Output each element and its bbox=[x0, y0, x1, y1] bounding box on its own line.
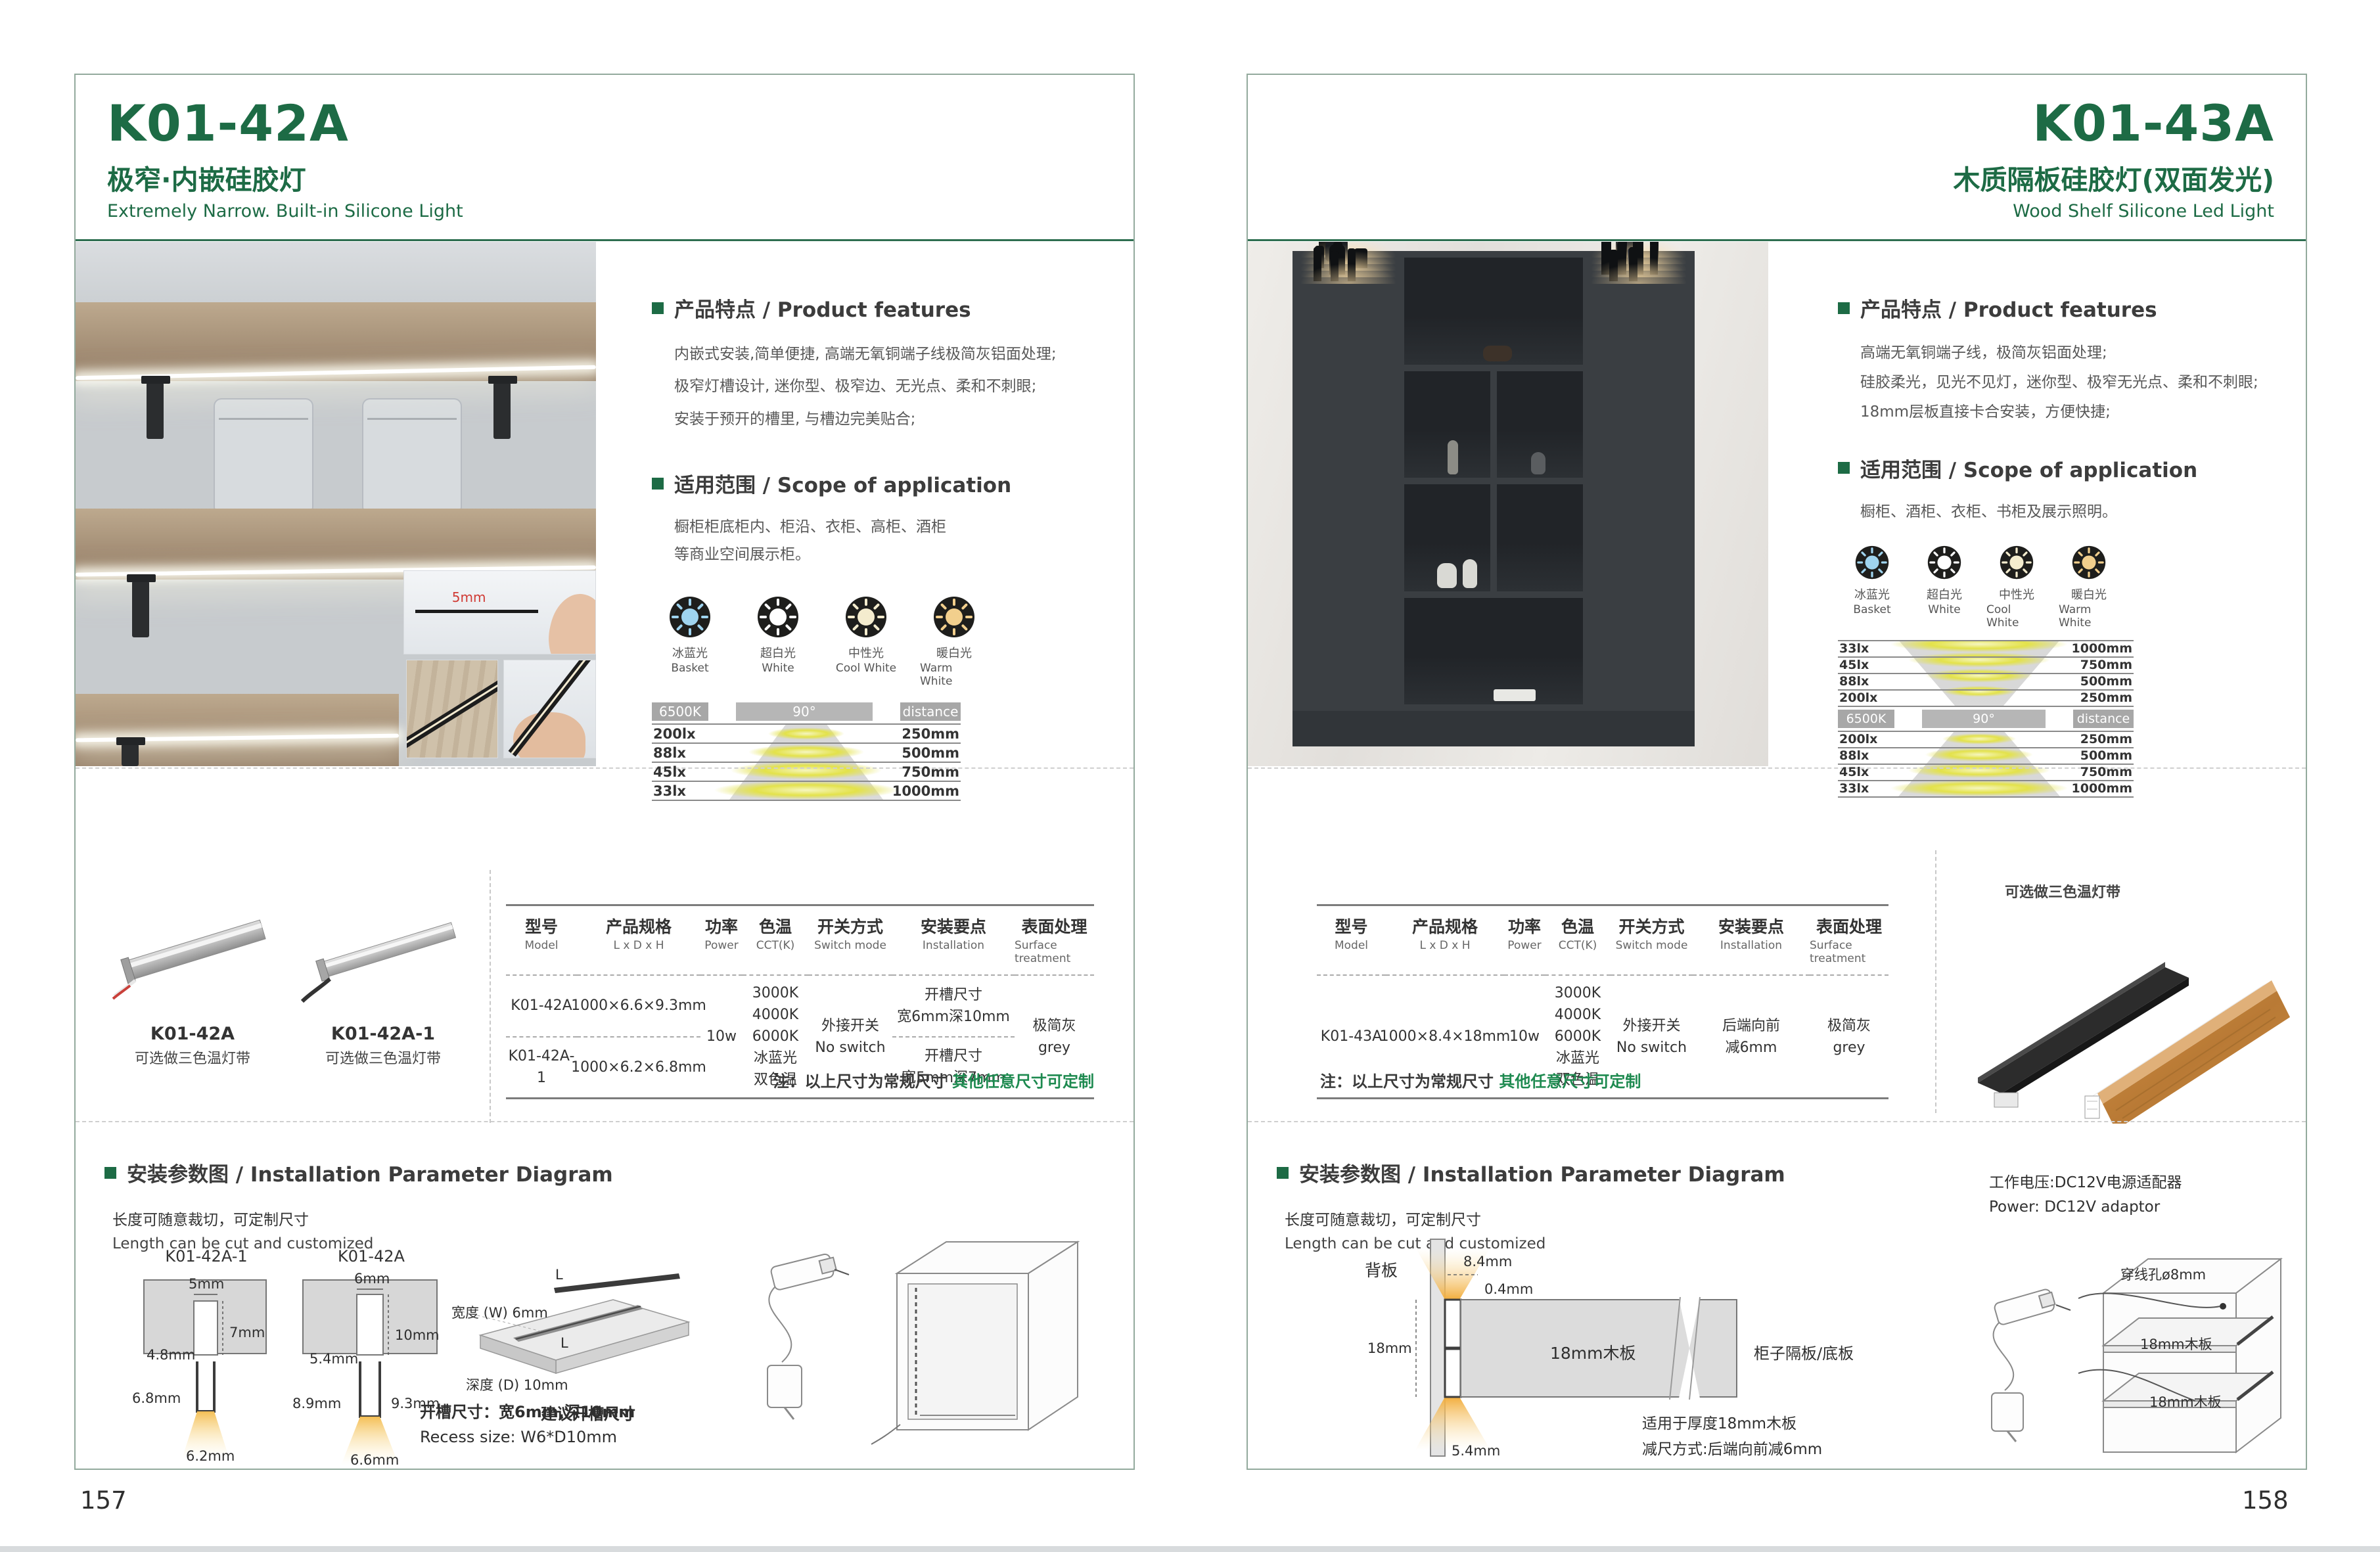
photo-ceiling bbox=[76, 242, 596, 302]
photometry-row: 200lx 250mm bbox=[652, 723, 961, 742]
right-product-figure: 可选做三色温灯带 bbox=[1968, 880, 2290, 1126]
install-heading-label: 安装参数图 / Installation Parameter Diagram bbox=[127, 1158, 613, 1187]
light-color-white: 超白光 White bbox=[744, 596, 812, 688]
section-divider bbox=[1248, 767, 2306, 769]
product-note: 可选做三色温灯带 bbox=[2005, 880, 2290, 902]
light-color-label-en: White bbox=[1928, 603, 1960, 616]
light-color-cool-white: 中性光 Cool White bbox=[1986, 545, 2047, 629]
photometry-rows-top: 33lx 1000mm 45lx 750mm 88lx 500mm 200lx … bbox=[1838, 640, 2134, 707]
cabinet-base bbox=[1293, 711, 1695, 746]
diagram-label: K01-42A-1 bbox=[131, 1247, 282, 1266]
scope-line: 橱柜柜底柜内、柜沿、衣柜、高柜、酒柜 bbox=[674, 514, 1120, 541]
back-panel-label: 背板 bbox=[1365, 1258, 1398, 1281]
shelf-board-label: 18mm木板 bbox=[2149, 1392, 2222, 1411]
cct-tag: 6500K bbox=[652, 702, 708, 721]
adapter-plug-illustration bbox=[1964, 1273, 2076, 1457]
shelf-cabinet-illustration: 穿线孔ø8mm 18mm木板 18mm木板 bbox=[2077, 1235, 2294, 1465]
board-length-label: L bbox=[555, 1267, 563, 1283]
dim-height-left: 8.9mm bbox=[292, 1396, 341, 1411]
cabinet-illustration bbox=[861, 1227, 1091, 1457]
light-color-label-en: White bbox=[762, 662, 794, 675]
scope-line: 等商业空间展示柜。 bbox=[674, 541, 1120, 568]
col-header-size: 产品规格L x D x H bbox=[1386, 906, 1504, 976]
product-note: 可选做三色温灯带 bbox=[103, 1047, 282, 1068]
features-heading: 产品特点 / Product features bbox=[1838, 293, 2298, 323]
photometry-row: 33lx 1000mm bbox=[1838, 640, 2134, 656]
cct-tag: 6500K bbox=[1838, 710, 1894, 728]
left-product-figures: K01-42A 可选做三色温灯带 K01-42A-1 可选做三色温灯带 bbox=[103, 880, 472, 1068]
light-color-label-cn: 超白光 bbox=[1927, 585, 1962, 603]
power-spec-cn: 工作电压:DC12V电源适配器 bbox=[1989, 1171, 2182, 1195]
distance-tag: distance bbox=[900, 702, 961, 721]
dim-height: 6.8mm bbox=[132, 1390, 181, 1406]
wire-hole-label: 穿线孔ø8mm bbox=[2120, 1264, 2206, 1284]
feature-line: 安装于预开的槽里, 与槽边完美贴合; bbox=[674, 403, 1120, 436]
feature-line: 18mm层板直接卡合安装，方便快捷; bbox=[1860, 398, 2298, 427]
photometry-row: 45lx 750mm bbox=[652, 762, 961, 781]
feature-line: 高端无氧铜端子线，极简灰铝面处理; bbox=[1860, 338, 2298, 368]
dim-bottom-width: 6.6mm bbox=[350, 1452, 399, 1468]
light-color-label-cn: 冰蓝光 bbox=[672, 644, 708, 661]
diagram-label: K01-42A bbox=[292, 1247, 450, 1266]
dim-8-4: 8.4mm bbox=[1463, 1254, 1512, 1269]
light-color-ice-blue: 冰蓝光 Basket bbox=[1842, 545, 1902, 629]
cut-note-cn: 长度可随意裁切，可定制尺寸 bbox=[1285, 1209, 1545, 1233]
recessed-strip bbox=[406, 672, 498, 752]
cell-install: 开槽尺寸宽6mm深10mm bbox=[892, 976, 1015, 1036]
distance-value: 750mm bbox=[2080, 765, 2132, 779]
vertical-divider bbox=[490, 870, 491, 1123]
light-color-label-en: Warm White bbox=[2059, 603, 2119, 629]
product-name: K01-42A bbox=[103, 1024, 282, 1044]
lux-value: 33lx bbox=[1839, 641, 1869, 656]
note-custom: 其他任意尺寸可定制 bbox=[952, 1072, 1094, 1091]
square-bullet-icon bbox=[652, 478, 664, 490]
cabinet-cell bbox=[1404, 371, 1490, 478]
shelf-profile-image bbox=[1968, 907, 2290, 1124]
left-model-title: K01-42A bbox=[107, 97, 1102, 150]
left-install-section: 安装参数图 / Installation Parameter Diagram 长… bbox=[76, 1149, 1133, 1467]
col-header-surface: 表面处理Surface treatment bbox=[1810, 906, 1888, 976]
light-color-label-cn: 暖白光 bbox=[2071, 585, 2107, 603]
lux-value: 200lx bbox=[1839, 732, 1877, 746]
sun-icon bbox=[669, 596, 711, 638]
shelf-bracket bbox=[493, 382, 511, 439]
photometry-row: 45lx 750mm bbox=[1838, 764, 2134, 780]
col-header-size: 产品规格L x D x H bbox=[577, 906, 700, 976]
feature-line: 极窄灯槽设计, 迷你型、极窄边、无光点、柔和不刺眼; bbox=[674, 371, 1120, 403]
photometry-row: 45lx 750mm bbox=[1838, 656, 2134, 673]
scope-heading-label: 适用范围 / Scope of application bbox=[674, 468, 1011, 498]
col-header-model: 型号Model bbox=[506, 906, 577, 976]
col-header-power: 功率Power bbox=[1504, 906, 1545, 976]
shelf-board-label: 18mm木板 bbox=[2140, 1334, 2212, 1354]
recess-diagram-graphic bbox=[131, 1271, 282, 1468]
col-header-surface: 表面处理Surface treatment bbox=[1015, 906, 1094, 976]
photometry-tags: 6500K 90° distance bbox=[1838, 710, 2134, 728]
cabinet-column bbox=[1590, 258, 1688, 704]
shelf-cross-section: 背板 8.4mm 0.4mm 18mm 18mm木板 柜子隔板/底板 5.4mm… bbox=[1287, 1234, 1944, 1464]
distance-value: 1000mm bbox=[892, 783, 959, 799]
distance-value: 750mm bbox=[902, 764, 959, 780]
cabinet-graphic bbox=[861, 1227, 1091, 1457]
photometry-diagram-double: 33lx 1000mm 45lx 750mm 88lx 500mm 200lx … bbox=[1838, 640, 2134, 798]
install-heading: 安装参数图 / Installation Parameter Diagram bbox=[1277, 1158, 1785, 1187]
aluminum-profile-image bbox=[110, 880, 275, 1018]
dim-bottom-width: 6.2mm bbox=[186, 1448, 235, 1464]
board-width-label: 宽度 (W) 6mm bbox=[451, 1302, 548, 1322]
lux-value: 33lx bbox=[1839, 781, 1869, 796]
board-depth-label: 深度 (D) 10mm bbox=[466, 1375, 568, 1394]
left-header: K01-42A 极窄·内嵌硅胶灯 Extremely Narrow. Built… bbox=[76, 75, 1133, 241]
power-spec-en: Power: DC12V adaptor bbox=[1989, 1195, 2182, 1220]
right-title-en: Wood Shelf Silicone Led Light bbox=[1279, 201, 2274, 221]
col-header-cct: 色温CCT(K) bbox=[1545, 906, 1611, 976]
lux-value: 45lx bbox=[653, 764, 686, 780]
cabinet-cell bbox=[1497, 484, 1583, 591]
dim-5-4: 5.4mm bbox=[1452, 1443, 1500, 1459]
light-color-icons: 冰蓝光 Basket 超白光 Whi bbox=[1842, 545, 2298, 629]
left-title-en: Extremely Narrow. Built-in Silicone Ligh… bbox=[107, 201, 1102, 221]
lux-value: 200lx bbox=[1839, 691, 1877, 705]
light-color-icons: 冰蓝光 Basket 超白光 Whi bbox=[656, 596, 1120, 688]
scope-lines: 橱柜、酒柜、衣柜、书柜及展示照明。 bbox=[1860, 499, 2298, 526]
shelf-bracket bbox=[147, 382, 164, 439]
features-lines: 内嵌式安装,简单便捷, 高端无氧铜端子线极简灰铝面处理; 极窄灯槽设计, 迷你型… bbox=[674, 338, 1120, 436]
storage-box bbox=[362, 398, 462, 511]
page-number-right: 158 bbox=[2242, 1486, 2289, 1515]
board-length-label: L bbox=[561, 1335, 568, 1351]
right-header: K01-43A 木质隔板硅胶灯(双面发光) Wood Shelf Silicon… bbox=[1248, 75, 2306, 241]
cell-model: K01-42A bbox=[506, 976, 577, 1036]
light-color-label-cn: 中性光 bbox=[848, 644, 884, 661]
cross-note-1: 适用于厚度18mm木板 bbox=[1642, 1411, 1822, 1437]
dim-slot-width: 5mm bbox=[189, 1276, 224, 1292]
table-note: 注：以上尺寸为常规尺寸 其他任意尺寸可定制 bbox=[506, 1068, 1094, 1091]
cabinet-cell bbox=[1404, 598, 1583, 705]
sun-icon bbox=[845, 596, 887, 638]
cross-section-notes: 适用于厚度18mm木板 减尺方式:后端向前减6mm bbox=[1642, 1411, 1822, 1463]
sun-icon bbox=[2072, 545, 2106, 580]
distance-value: 500mm bbox=[902, 745, 959, 761]
photometry-tags: 6500K 90° distance bbox=[652, 702, 961, 721]
sun-icon bbox=[2000, 545, 2034, 580]
screenshot-bottom-strip bbox=[0, 1546, 2380, 1552]
page-number-left: 157 bbox=[80, 1486, 127, 1515]
hand-hold-inset bbox=[503, 660, 596, 758]
product-note: 可选做三色温灯带 bbox=[294, 1047, 472, 1068]
photometry-rows-bottom: 200lx 250mm 88lx 500mm 45lx 750mm 33lx 1… bbox=[1838, 731, 2134, 798]
features-heading: 产品特点 / Product features bbox=[652, 293, 1120, 323]
photometry-row: 33lx 1000mm bbox=[1838, 780, 2134, 796]
cut-note-cn: 长度可随意裁切，可定制尺寸 bbox=[112, 1209, 373, 1233]
dim-slot-depth: 7mm bbox=[229, 1325, 265, 1340]
photometry-diagram: 6500K 90° distance bbox=[652, 702, 961, 801]
dim-slot-width: 6mm bbox=[354, 1271, 390, 1287]
recess-note-cn: 开槽尺寸：宽6mm,深10mm bbox=[420, 1400, 635, 1425]
recess-diagram-42a1: K01-42A-1 5mm 7mm 4.8mm 6.8mm 6.2mm bbox=[131, 1247, 282, 1467]
left-features-column: 产品特点 / Product features 内嵌式安装,简单便捷, 高端无氧… bbox=[652, 293, 1120, 801]
section-divider bbox=[76, 1121, 1133, 1122]
photometry-row: 200lx 250mm bbox=[1838, 731, 2134, 747]
thickness-annotation: 5mm bbox=[452, 589, 486, 605]
square-bullet-icon bbox=[104, 1167, 116, 1179]
right-model-title: K01-43A bbox=[1279, 97, 2274, 150]
power-spec: 工作电压:DC12V电源适配器 Power: DC12V adaptor bbox=[1989, 1171, 2182, 1220]
product-name: K01-42A-1 bbox=[294, 1024, 472, 1044]
dim-top-width: 5.4mm bbox=[309, 1351, 358, 1367]
distance-value: 250mm bbox=[902, 726, 959, 742]
light-color-label-cn: 超白光 bbox=[760, 644, 796, 661]
note-custom: 其他任意尺寸可定制 bbox=[1499, 1072, 1641, 1091]
section-divider bbox=[1248, 1121, 2306, 1122]
profile-bar bbox=[415, 610, 538, 613]
col-header-install: 安装要点Installation bbox=[892, 906, 1015, 976]
adapter-plug-graphic bbox=[1964, 1273, 2076, 1457]
note-prefix: 注：以上尺寸为常规尺寸 bbox=[1320, 1072, 1499, 1091]
product-figure: K01-42A 可选做三色温灯带 bbox=[103, 880, 282, 1068]
scope-lines: 橱柜柜底柜内、柜沿、衣柜、高柜、酒柜 等商业空间展示柜。 bbox=[674, 514, 1120, 568]
right-title-cn: 木质隔板硅胶灯(双面发光) bbox=[1279, 158, 2274, 197]
cabinet-cell bbox=[1497, 371, 1583, 478]
board-perspective-graphic bbox=[462, 1272, 698, 1417]
light-color-label-en: Basket bbox=[1853, 603, 1890, 616]
lux-value: 88lx bbox=[1839, 674, 1869, 689]
distance-value: 1000mm bbox=[2072, 781, 2132, 796]
light-color-label-en: Basket bbox=[671, 662, 708, 675]
square-bullet-icon bbox=[652, 302, 664, 314]
cabinet-cell bbox=[1404, 484, 1490, 591]
photometry-row: 88lx 500mm bbox=[1838, 747, 2134, 764]
photometry-row: 200lx 250mm bbox=[1838, 689, 2134, 706]
light-color-label-cn: 冰蓝光 bbox=[1854, 585, 1890, 603]
dim-top-width: 4.8mm bbox=[147, 1347, 195, 1363]
scope-heading-label: 适用范围 / Scope of application bbox=[1860, 453, 2197, 483]
cell-install: 后端向前减6mm bbox=[1693, 976, 1810, 1097]
features-heading-label: 产品特点 / Product features bbox=[674, 293, 971, 323]
display-cabinet bbox=[1293, 251, 1695, 711]
col-header-power: 功率Power bbox=[700, 906, 743, 976]
shelf-bracket bbox=[132, 581, 149, 637]
sun-icon bbox=[1855, 545, 1889, 580]
features-lines: 高端无氧铜端子线，极简灰铝面处理; 硅胶柔光，见光不见灯，迷你型、极窄无光点、柔… bbox=[1860, 338, 2298, 427]
light-color-label-cn: 暖白光 bbox=[936, 644, 972, 661]
cabinet-cell bbox=[1404, 258, 1583, 365]
light-color-label-en: Warm White bbox=[920, 662, 988, 688]
left-application-photo: 5mm bbox=[76, 242, 596, 766]
sun-icon bbox=[1927, 545, 1961, 580]
shelf-label: 柜子隔板/底板 bbox=[1754, 1340, 1854, 1363]
recess-note-en: Recess size: W6*D10mm bbox=[420, 1425, 635, 1449]
section-divider bbox=[76, 767, 1133, 769]
storage-box bbox=[214, 398, 313, 511]
scope-heading: 适用范围 / Scope of application bbox=[652, 468, 1120, 498]
square-bullet-icon bbox=[1838, 302, 1850, 314]
photometry-rows: 200lx 250mm 88lx 500mm 45lx 750mm 33lx 1… bbox=[652, 723, 961, 801]
board-label: 18mm木板 bbox=[1550, 1340, 1636, 1364]
square-bullet-icon bbox=[1277, 1167, 1289, 1179]
right-features-column: 产品特点 / Product features 高端无氧铜端子线，极简灰铝面处理… bbox=[1838, 293, 2298, 798]
light-color-cool-white: 中性光 Cool White bbox=[832, 596, 900, 688]
features-heading-label: 产品特点 / Product features bbox=[1860, 293, 2157, 323]
lux-value: 45lx bbox=[1839, 658, 1869, 672]
cell-surface: 极简灰grey bbox=[1810, 976, 1888, 1097]
vertical-divider bbox=[1935, 850, 1936, 1113]
note-prefix: 注：以上尺寸为常规尺寸 bbox=[773, 1072, 952, 1091]
page-158: K01-43A 木质隔板硅胶灯(双面发光) Wood Shelf Silicon… bbox=[1247, 74, 2307, 1470]
light-color-label-cn: 中性光 bbox=[1999, 585, 2034, 603]
right-application-photo bbox=[1248, 242, 1768, 766]
catalog-spread: K01-42A 极窄·内嵌硅胶灯 Extremely Narrow. Built… bbox=[0, 0, 2380, 1552]
beam-angle-bar: 90° bbox=[1922, 710, 2046, 728]
distance-value: 1000mm bbox=[2072, 641, 2132, 656]
thin-profile-inset: 5mm bbox=[403, 570, 596, 654]
lux-value: 45lx bbox=[1839, 765, 1869, 779]
photometry-row: 88lx 500mm bbox=[652, 742, 961, 762]
lux-value: 200lx bbox=[653, 726, 696, 742]
distance-value: 250mm bbox=[2080, 691, 2132, 705]
col-header-install: 安装要点Installation bbox=[1693, 906, 1810, 976]
light-color-ice-blue: 冰蓝光 Basket bbox=[656, 596, 724, 688]
photometry-row: 88lx 500mm bbox=[1838, 673, 2134, 689]
col-header-switch: 开关方式Switch mode bbox=[808, 906, 892, 976]
aluminum-profile-image bbox=[301, 880, 465, 1018]
table-note: 注：以上尺寸为常规尺寸 其他任意尺寸可定制 bbox=[1320, 1068, 1641, 1091]
adapter-plug-illustration bbox=[736, 1241, 854, 1438]
dim-18: 18mm bbox=[1367, 1340, 1412, 1356]
sun-icon bbox=[757, 596, 799, 638]
beam-angle-bar: 90° bbox=[736, 702, 873, 721]
right-install-section: 安装参数图 / Installation Parameter Diagram 长… bbox=[1248, 1149, 2306, 1467]
light-color-label-en: Cool White bbox=[1986, 603, 2047, 629]
wood-recess-inset bbox=[406, 660, 498, 758]
square-bullet-icon bbox=[1838, 462, 1850, 474]
install-heading-label: 安装参数图 / Installation Parameter Diagram bbox=[1299, 1158, 1785, 1187]
recess-size-note: 开槽尺寸：宽6mm,深10mm Recess size: W6*D10mm bbox=[420, 1400, 635, 1450]
hand-silhouette bbox=[541, 589, 596, 654]
dim-0-4: 0.4mm bbox=[1484, 1281, 1533, 1297]
cross-note-2: 减尺方式:后端向前减6mm bbox=[1642, 1437, 1822, 1463]
distance-tag: distance bbox=[2073, 710, 2134, 728]
light-color-white: 超白光 White bbox=[1914, 545, 1975, 629]
page-157: K01-42A 极窄·内嵌硅胶灯 Extremely Narrow. Built… bbox=[74, 74, 1135, 1470]
col-header-model: 型号Model bbox=[1317, 906, 1386, 976]
scope-line: 橱柜、酒柜、衣柜、书柜及展示照明。 bbox=[1860, 499, 2298, 526]
shelf-bracket bbox=[122, 744, 139, 766]
col-header-cct: 色温CCT(K) bbox=[743, 906, 808, 976]
distance-value: 500mm bbox=[2080, 674, 2132, 689]
cabinet-column bbox=[1299, 258, 1398, 704]
left-title-cn: 极窄·内嵌硅胶灯 bbox=[107, 158, 1102, 197]
distance-value: 500mm bbox=[2080, 748, 2132, 763]
product-figure: K01-42A-1 可选做三色温灯带 bbox=[294, 880, 472, 1068]
install-heading: 安装参数图 / Installation Parameter Diagram bbox=[104, 1158, 613, 1187]
feature-line: 硅胶柔光，见光不见灯，迷你型、极窄无光点、柔和不刺眼; bbox=[1860, 368, 2298, 398]
light-color-warm-white: 暖白光 Warm White bbox=[920, 596, 988, 688]
lux-value: 88lx bbox=[1839, 748, 1869, 763]
light-color-warm-white: 暖白光 Warm White bbox=[2059, 545, 2119, 629]
distance-value: 750mm bbox=[2080, 658, 2132, 672]
lux-value: 88lx bbox=[653, 745, 686, 761]
col-header-switch: 开关方式Switch mode bbox=[1611, 906, 1693, 976]
light-color-label-en: Cool White bbox=[836, 662, 896, 675]
photometry-row: 33lx 1000mm bbox=[652, 781, 961, 800]
cabinet-middle-grid bbox=[1404, 258, 1583, 704]
cell-size: 1000×6.6×9.3mm bbox=[577, 976, 700, 1036]
feature-line: 内嵌式安装,简单便捷, 高端无氧铜端子线极简灰铝面处理; bbox=[674, 338, 1120, 371]
sun-icon bbox=[933, 596, 975, 638]
scope-heading: 适用范围 / Scope of application bbox=[1838, 453, 2298, 483]
dim-slot-depth: 10mm bbox=[395, 1327, 440, 1343]
lux-value: 33lx bbox=[653, 783, 686, 799]
adapter-plug-graphic bbox=[736, 1241, 854, 1438]
distance-value: 250mm bbox=[2080, 732, 2132, 746]
